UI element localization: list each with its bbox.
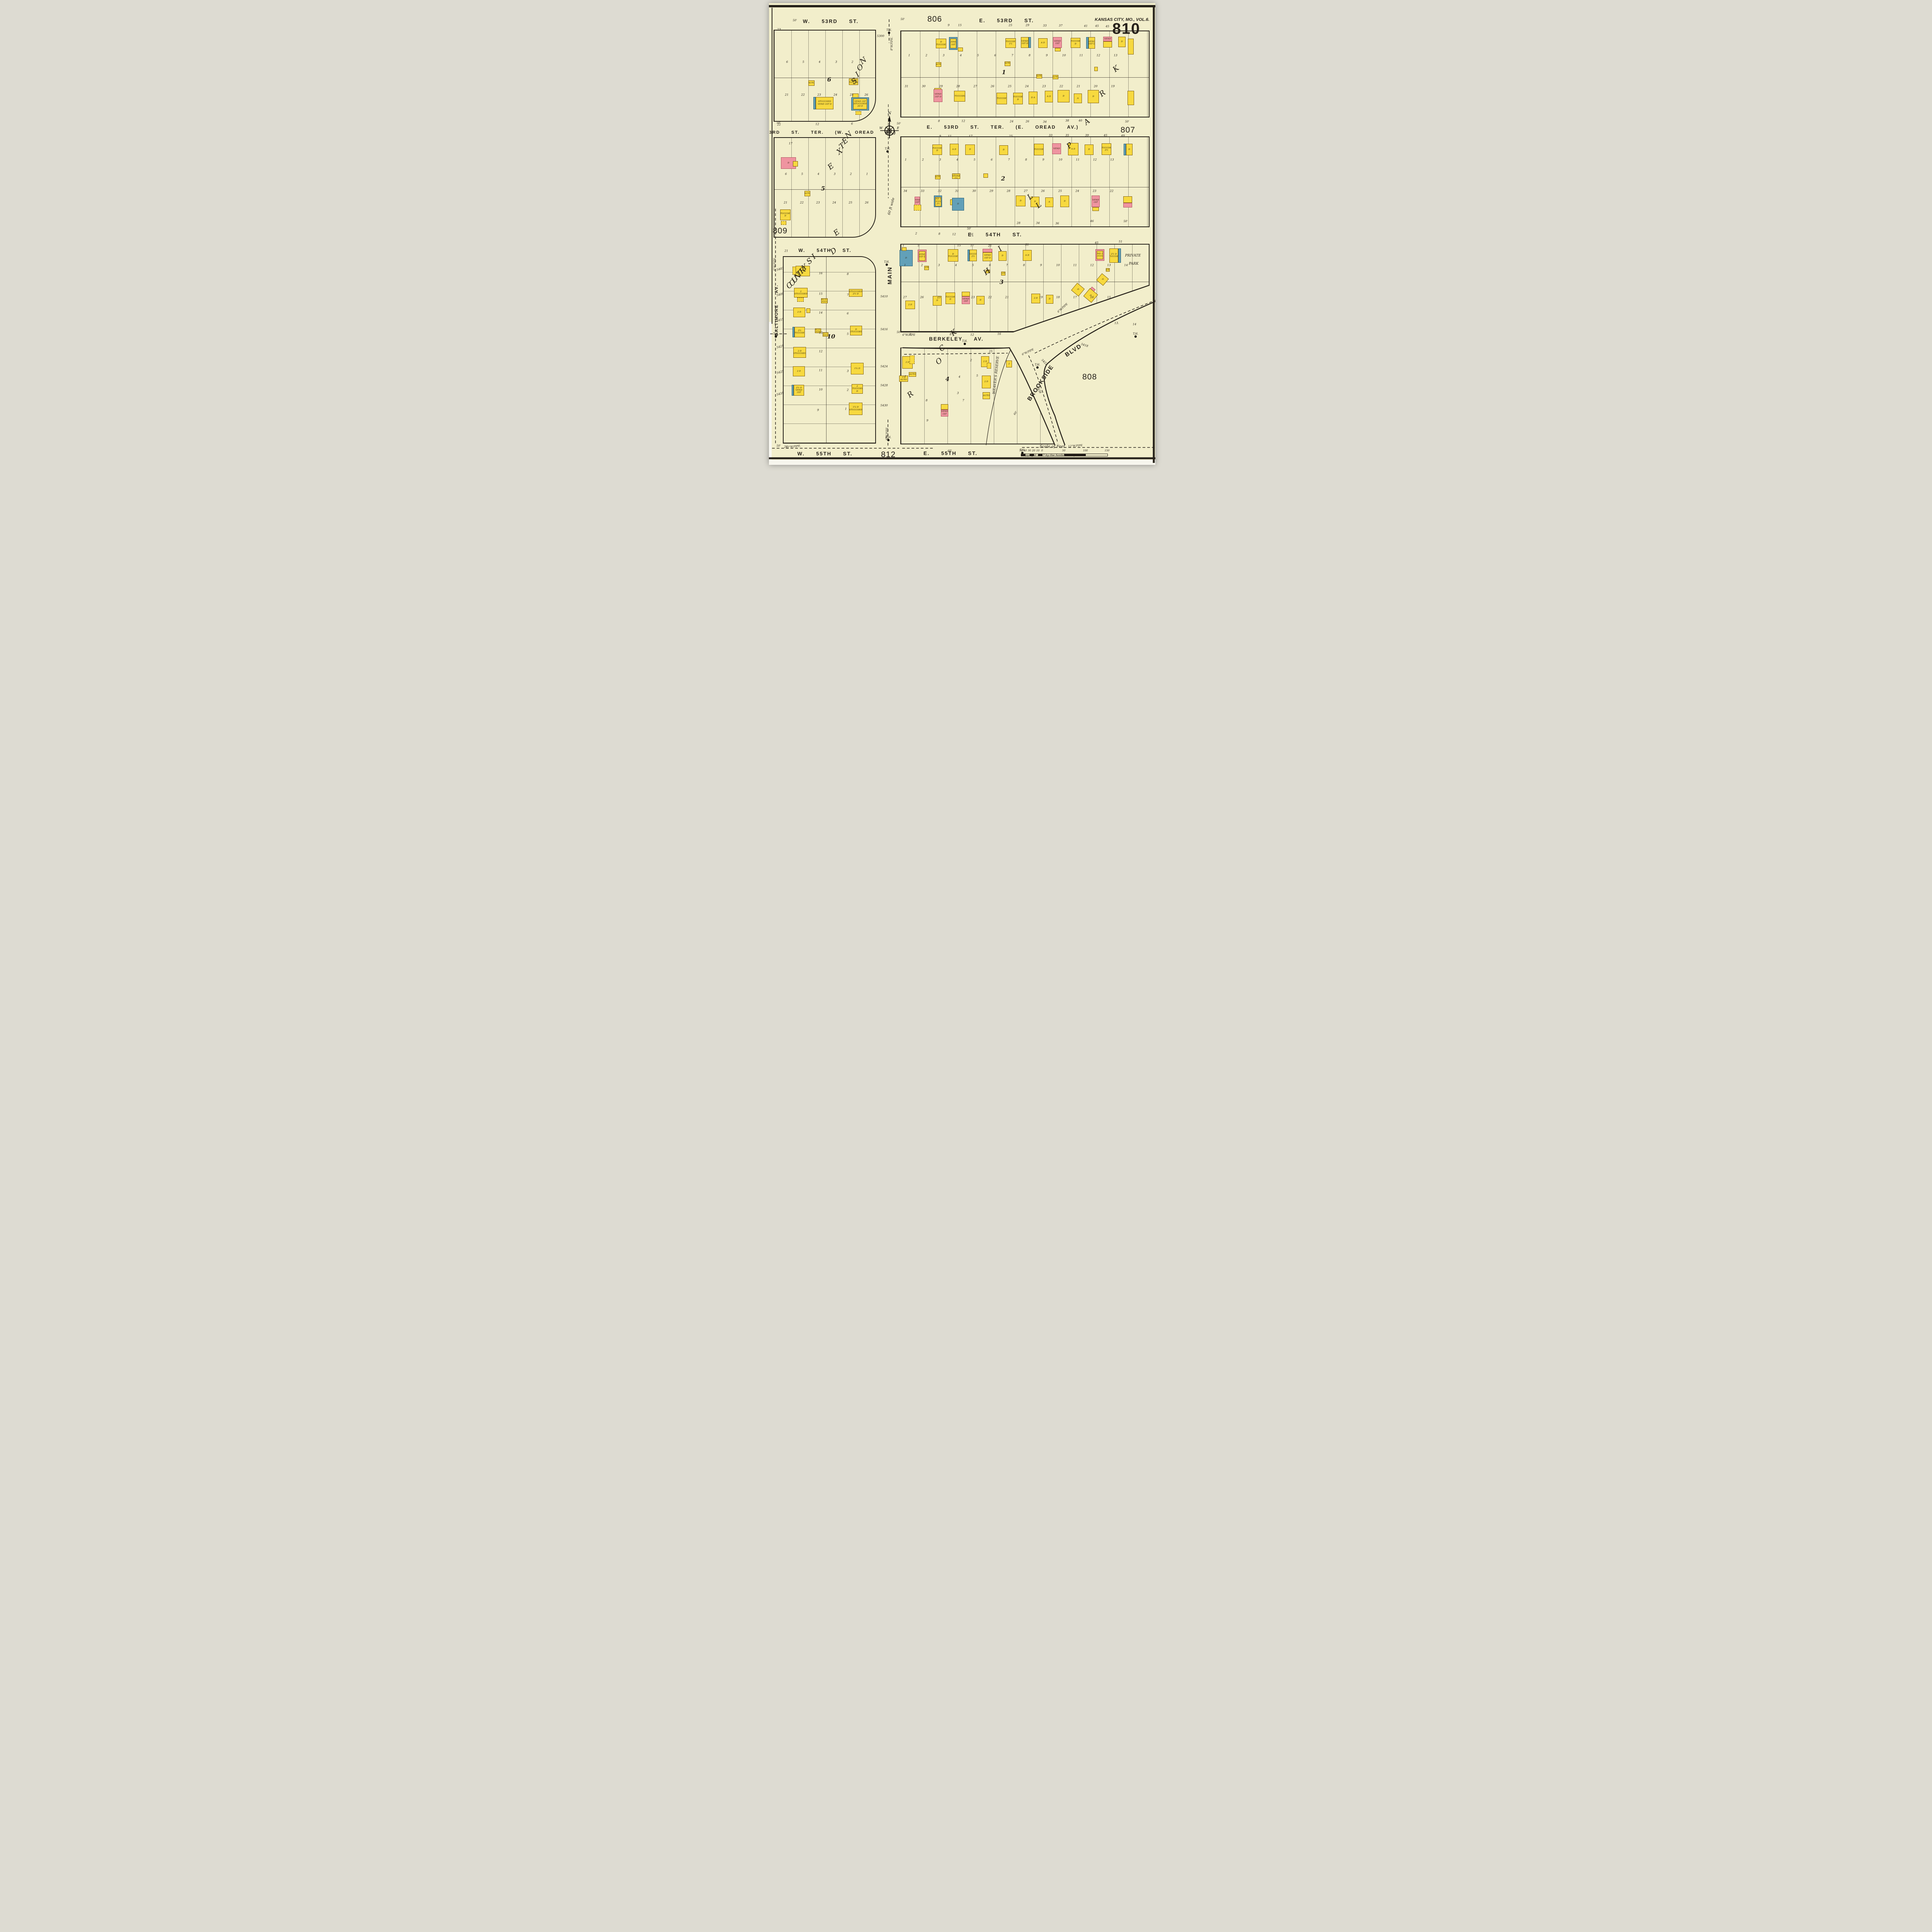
lot-number: 1 (908, 54, 910, 57)
lot-number: 1 (904, 263, 906, 267)
lot-number: 6 (991, 158, 993, 162)
lot-number: 10 (1056, 263, 1060, 267)
building: VEND 1ST D (1088, 37, 1095, 49)
building-label: D (936, 299, 938, 302)
building: AUTO (804, 191, 810, 196)
house-number: 34 (1043, 120, 1047, 123)
building-label: 2 D (797, 370, 801, 372)
building-label: 1¼ D STUCCOED (849, 406, 862, 411)
building: 2 D (793, 366, 805, 376)
lot-number: 23 (816, 201, 820, 204)
building (902, 247, 906, 250)
building: D (976, 296, 985, 305)
lot-number: 29 (939, 85, 943, 88)
lot-number: 28 (956, 85, 960, 88)
lot-number: 12 (1090, 263, 1094, 267)
lot-number: 25 (1008, 85, 1012, 88)
house-number: 5300 (877, 34, 884, 37)
lot-number: 20 (1094, 85, 1098, 88)
building: D (1118, 37, 1126, 47)
building: D (1016, 196, 1026, 206)
lot-number: 5 (974, 158, 976, 162)
block-number: 6 (827, 76, 831, 83)
building: D (998, 251, 1007, 261)
building: AUTO (808, 80, 815, 86)
building-label: 2 D (798, 311, 801, 313)
lot-number: 21 (1077, 85, 1080, 88)
building: STUCCOED D (1013, 93, 1023, 104)
house-number: 39 (1085, 134, 1089, 137)
hydrant-dot-icon (964, 343, 966, 345)
building-label: 2 D (908, 304, 912, 306)
building-label: STUCCOED D (1013, 96, 1023, 101)
hydrant-dot-icon (1036, 366, 1039, 369)
house-number: 29 (1026, 24, 1029, 27)
building: STUCCOED D (1071, 38, 1080, 48)
lot-number: 6 (786, 60, 788, 63)
house-number: 46 (1090, 219, 1094, 223)
building-label: D (1003, 149, 1004, 151)
lot-number: 5 (972, 263, 974, 267)
lot-number: 6 (847, 312, 849, 315)
house-number: 25 (1009, 134, 1013, 138)
building (1123, 203, 1132, 207)
building-label: STUCCOED (1034, 148, 1044, 151)
street-label: MAIN (887, 267, 893, 284)
lot-number: 16 (1090, 296, 1094, 299)
lot-number: 11 (1079, 54, 1083, 57)
building (793, 161, 798, 167)
lot-number: 24 (1025, 85, 1029, 88)
lot-number: 4 (955, 263, 957, 267)
lot-number: 6 (994, 54, 996, 57)
building-label: VEND 1ST D (919, 253, 925, 259)
lot-number: 9 (817, 408, 819, 412)
hydrant-dot-icon (887, 439, 889, 441)
lot-number: 24 (833, 93, 837, 96)
hydrant-marker: T.H. (962, 340, 968, 345)
lot-number: 14 (1124, 263, 1128, 267)
water-pipe-label: 6"W.PIPE. (773, 257, 776, 270)
lot-number: 8 (847, 272, 849, 276)
lot-number: 27 (1024, 189, 1028, 193)
building (1094, 67, 1098, 71)
house-number: 5424 (880, 365, 888, 368)
lot-number: 3 (943, 54, 945, 57)
building-label: STUCCOED D (1071, 40, 1080, 45)
building: AUTO (936, 62, 941, 67)
block-number: 3 (1000, 279, 1003, 286)
house-number: 45 (1095, 241, 1099, 245)
building: D (999, 145, 1008, 155)
building (910, 355, 915, 364)
lot-number: 15 (819, 292, 823, 295)
street-label: W. 53RD ST. (803, 19, 859, 24)
building (914, 205, 921, 210)
house-number: 8 (938, 119, 940, 122)
lot-number: 34 (903, 189, 907, 193)
street-label: W. 53RD ST. TER. (W. OREAD AV.) (769, 130, 896, 135)
building: VEND 1ST D (919, 251, 925, 261)
scale-tick-label: 30 (1028, 449, 1031, 452)
lot-number: 13. (1114, 321, 1119, 325)
building: VEND 1ST (1053, 37, 1062, 48)
street-label: BALTIMORE AV. (774, 284, 779, 336)
building: 2 STUCCOED D (852, 384, 863, 394)
lot-number: 8 (1023, 263, 1025, 267)
building-label: D (980, 299, 981, 301)
building-label: D A (1031, 97, 1035, 99)
building: VEND 1ST D (983, 252, 992, 261)
lot-number: 10 (1059, 158, 1063, 162)
lot-number: 3 (847, 369, 849, 373)
building (781, 221, 786, 225)
building: 2½ STUCCOED (794, 327, 805, 337)
lot-number: 4 (818, 172, 820, 176)
scale-tick-label: 50 (1062, 449, 1065, 452)
building (1118, 248, 1121, 263)
lot-number: 2 (925, 54, 927, 57)
house-number: 21 (988, 244, 992, 247)
building: D STUCCOED (936, 39, 946, 48)
building: VEND 1ST STUCCOED 2D D (853, 99, 867, 109)
lot-number: 16 (819, 272, 823, 275)
building-label: AUTO (1036, 75, 1042, 77)
building-label: A (1049, 201, 1050, 203)
building: 2½ D STUCCOED (1109, 248, 1118, 263)
lot-number: 20 (784, 445, 788, 449)
building-label: D (905, 257, 907, 259)
lot-number: 12 (1093, 158, 1097, 162)
lot-number: 8 (1025, 158, 1027, 162)
scale-tick-label: 20 (1032, 449, 1035, 452)
house-number: 33 (1049, 133, 1053, 137)
building: STUCCOED (954, 91, 965, 101)
lot-number: 27 (973, 85, 977, 88)
hydrant-marker: T.H. (1035, 363, 1040, 369)
building: D A (1029, 92, 1037, 104)
hydrant-marker: T.H. (773, 332, 779, 338)
house-number: 38 (1065, 119, 1069, 122)
lot-number: 17 (1073, 296, 1077, 299)
block-number: 1 (1002, 69, 1006, 76)
lot-number: 7 (1012, 54, 1014, 57)
lot-number: 7 (963, 398, 964, 402)
building: VEND 1ST (950, 39, 956, 48)
building: AUTO (1036, 74, 1042, 78)
house-number: 5 (918, 244, 920, 247)
block-number: 2 (1001, 175, 1005, 182)
house-number: 16 (997, 332, 1001, 335)
building-label: AUTO (804, 192, 810, 195)
building: 1¼ D (851, 363, 864, 374)
building-label: D STUCCOED (936, 41, 946, 46)
lot-number: 25 (850, 93, 854, 96)
lot-number: 31 (955, 189, 959, 193)
lot-number: 3 (834, 172, 836, 176)
house-number: 2 (915, 232, 917, 235)
house-number: 5410 (880, 294, 888, 298)
building: STUCCOED D (932, 145, 942, 155)
lot-number: 4 (960, 54, 962, 57)
lot-number: 30 (922, 85, 926, 88)
building: STUCCOED 2½ D (849, 289, 862, 297)
dimension-label: 50' (901, 18, 905, 21)
building-label: STUCCOED D (946, 296, 955, 301)
hydrant-marker: T.H. (1133, 332, 1138, 338)
lot-number: 3 (835, 60, 837, 63)
lot-number: 9 (1046, 54, 1048, 57)
building: VEND (1052, 143, 1061, 154)
lot-number: 22 (1110, 189, 1114, 193)
building-label: STUCCOED D (932, 147, 942, 152)
building-label: AUTO STUCCOED (821, 298, 828, 303)
building-label: STUCCOED VEND 1ST D (816, 100, 833, 105)
house-number: 41 (1084, 24, 1088, 27)
house-number: 35 (1065, 133, 1069, 137)
building-label: VEND (1053, 148, 1060, 150)
building-label: STUCCOED 2½ D (849, 291, 862, 296)
block-mid-line (901, 187, 1149, 187)
lot-number: 25 (849, 201, 852, 204)
adjacent-sheet-number: 809 (773, 226, 787, 236)
building-label: D STUCCOED (850, 328, 862, 333)
lot-number: 12 (1097, 54, 1100, 57)
building-label: 2 D STUCCOED (793, 350, 806, 355)
building-label: VEND 1ST D (1021, 40, 1028, 45)
block-number: 4 (946, 376, 949, 383)
compass-east-label: E (896, 126, 899, 130)
lot-number: 23 (1093, 189, 1097, 193)
building-label: A D (1025, 254, 1029, 257)
house-number: 49 (1121, 134, 1125, 137)
building: VEND 1ST (941, 410, 948, 417)
building (1055, 48, 1061, 52)
building-label: D STUCCOED (948, 253, 958, 258)
lot-number: 12 (819, 350, 823, 353)
lot-number: 28 (1007, 189, 1010, 193)
building: D (900, 250, 913, 266)
building (806, 308, 810, 313)
building-label: VEND 1ST STUCCOED 2D D (854, 100, 867, 108)
scale-tick-label: 50 (1019, 449, 1022, 452)
building: 1¼ D STUCCOED (849, 403, 862, 415)
house-number: 2 (910, 332, 912, 336)
building: 2½ D VEND 1ST (794, 385, 804, 395)
scale-tick-label: 40 (1024, 449, 1027, 452)
street-label: E. 53RD ST. TER. (E. OREAD AV.) (927, 124, 1079, 130)
building-label: STUCCOED 1½ (1005, 41, 1016, 46)
lot-number: 25 (937, 296, 941, 299)
street-edge-line (1044, 301, 1155, 445)
building: VEND 1ST D (1021, 37, 1029, 48)
house-number: 5430 (880, 403, 888, 407)
building: STUCCOED (1034, 144, 1044, 155)
house-number: 45 (1104, 134, 1107, 137)
hydrant-label: T.H. (884, 260, 889, 264)
building (962, 292, 970, 296)
lot-number: 29 (990, 189, 993, 193)
building: STUCCOED 2½ (969, 250, 977, 261)
building (855, 111, 861, 115)
building-label: VEND 1ST (1053, 40, 1061, 45)
building: STUCCOED 2½ (1102, 143, 1111, 155)
hydrant-dot-icon (886, 150, 889, 153)
lot-number: 30 (972, 189, 976, 193)
house-number: 9 (948, 23, 950, 27)
lot-number: 18 (1056, 296, 1060, 299)
lot-number: 1 (905, 374, 906, 378)
lot-number: 22 (801, 93, 805, 96)
building: AUTO (909, 372, 916, 377)
copyright-note: Copyright 1917 by the Sanborn Map Co (1022, 453, 1080, 457)
house-number: 36 (1055, 222, 1059, 225)
lot-number: 11 (819, 369, 823, 372)
lot-number: 33 (921, 189, 925, 193)
water-pipe-label: 6"W.PIPE (902, 333, 915, 337)
house-number: 24 (1010, 119, 1014, 123)
house-number: 34 (1036, 221, 1040, 225)
house-number: 51 (1119, 240, 1122, 243)
building: D STUCCOED (850, 326, 862, 335)
lot-number: 26 (865, 201, 869, 204)
lot-number: 5 (801, 172, 803, 176)
lot-number: 15 (1107, 296, 1111, 299)
building-label: D (957, 203, 959, 205)
building-label: D (1101, 278, 1104, 281)
lot-number: 14 (819, 311, 823, 314)
house-number: 5428 (880, 384, 888, 387)
lot-number: 22 (988, 296, 992, 299)
building: D (1126, 144, 1133, 155)
building (987, 363, 991, 369)
hydrant-dot-icon (1134, 335, 1137, 338)
building: D (1060, 196, 1069, 207)
building-label: 1½ AUTO (900, 376, 908, 381)
dimension-label: 50' (1124, 220, 1128, 223)
building-label: 2½ D STUCCOED (1109, 253, 1118, 258)
house-number: 12 (961, 119, 965, 123)
lot-number: 5 (847, 332, 849, 335)
building-label: AUTO (983, 395, 990, 397)
annotation-label: Scale of Feet. (1039, 445, 1066, 449)
building-label: D (1002, 255, 1003, 257)
building-label: D (1049, 298, 1050, 300)
building-label: D (1128, 148, 1130, 151)
building: STUCCOED (997, 93, 1007, 104)
building (1128, 39, 1134, 54)
lot-number: 7 (1008, 158, 1010, 162)
building: AUTO (935, 175, 940, 180)
building-label: VEND 1ST (1092, 199, 1099, 204)
building-label: D (1088, 148, 1090, 151)
building-label: D (787, 162, 789, 164)
building-label: A D (1047, 95, 1051, 98)
dimension-label: 50' (1125, 120, 1129, 123)
building-label: 2½ D VEND 1ST (794, 387, 804, 394)
building (983, 173, 988, 178)
building-label: VEND 1ST D (983, 254, 992, 259)
annotation-label: PRIVATE (1125, 254, 1141, 258)
building: A D (950, 144, 959, 155)
building-label: VEND 1ST (962, 298, 969, 303)
building: A (1074, 94, 1082, 103)
building-label: A D (952, 148, 956, 151)
lot-number: 22 (1060, 85, 1063, 88)
building-label: VEND 1ST (941, 410, 948, 415)
hydrant-label: T.H. (886, 29, 892, 32)
house-number: 33 (1043, 24, 1047, 27)
lot-number: 27 (903, 296, 907, 299)
building-label: D (969, 148, 971, 151)
lot-number: 21 (784, 249, 788, 252)
building (797, 298, 804, 302)
building-label: AUTO (1053, 76, 1058, 78)
building: 2 D (793, 308, 805, 317)
annotation-label: PARK (1129, 262, 1138, 266)
building: D (1058, 90, 1070, 102)
adjacent-sheet-number: 808 (1082, 372, 1097, 382)
lot-number: 26 (991, 85, 995, 88)
building-label: STUCCOED D (780, 213, 791, 218)
house-number: 28 (1017, 221, 1020, 224)
lot-number: 4 (959, 375, 961, 378)
lot-number: 25 (1058, 189, 1062, 193)
building-label: 2½ STUCCOED (794, 330, 805, 335)
block-mid-line (901, 282, 1149, 282)
house-number: 25 (989, 350, 993, 353)
building (1123, 196, 1132, 203)
scale-tick-label: 0 (1041, 449, 1043, 452)
lot-number: 21 (1005, 296, 1009, 299)
building (983, 249, 992, 253)
building (1103, 41, 1112, 48)
lot-number: 8 (1029, 54, 1031, 57)
building (941, 404, 948, 409)
building-label: AUTO (909, 373, 916, 376)
street-label: W. 55TH ST. (798, 451, 853, 457)
building: AUTO STUCCOED (821, 298, 828, 303)
house-number: 12 (952, 232, 956, 236)
building: AUTO (1053, 75, 1058, 79)
building-label: 2 D (906, 361, 910, 364)
building: A D (1038, 38, 1048, 48)
hydrant-label: T.H. (885, 147, 890, 150)
hydrant-label: T.H. (773, 332, 779, 335)
building-label: AUTO (1001, 272, 1005, 275)
building: 2 STUCCOED (794, 288, 808, 298)
lot-number: 9 (927, 419, 929, 422)
scale-tick-label: 150 (1105, 449, 1109, 452)
building: D (965, 145, 975, 155)
building: STUCCOED VEND 1ST D (816, 97, 833, 109)
lot-number: 26 (1041, 189, 1045, 193)
lot-number: 24 (1075, 189, 1079, 193)
building: A D (1023, 250, 1032, 260)
house-number: 37 (1059, 24, 1063, 27)
building: VEND 1ST STUCCOED 2½ (935, 197, 941, 206)
building: STUCCOED D (780, 209, 791, 220)
house-number: 15 (958, 23, 962, 27)
building: STUCCOED 1½ (1005, 38, 1016, 48)
building: VEND (1103, 37, 1112, 41)
block-number: 5 (821, 185, 825, 192)
lot-number: 7 (1006, 263, 1008, 267)
hydrant-marker: B.H. (885, 436, 891, 441)
lot-number: 6 (785, 172, 787, 176)
building-label: VEND 1ST STUCCOED 2½ (935, 198, 941, 205)
lot-number: 1 (905, 158, 907, 162)
